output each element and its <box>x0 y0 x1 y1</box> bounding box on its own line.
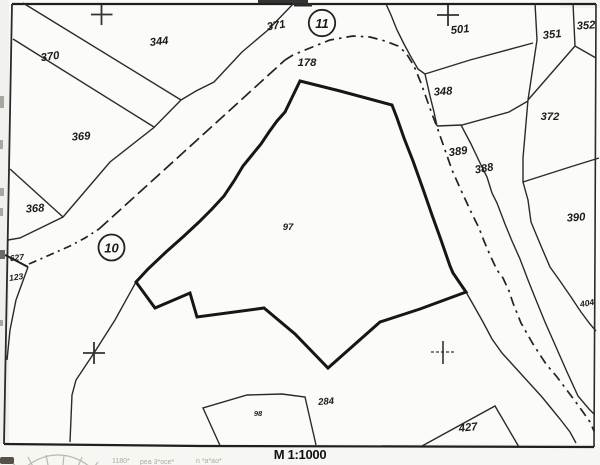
svg-text:98: 98 <box>254 409 263 418</box>
svg-text:pea 3*oce*: pea 3*oce* <box>140 459 175 465</box>
svg-text:390: 390 <box>566 211 586 224</box>
svg-text:627: 627 <box>9 252 25 264</box>
svg-text:284: 284 <box>317 396 335 408</box>
svg-text:348: 348 <box>433 85 453 98</box>
svg-text:123: 123 <box>8 271 24 283</box>
svg-text:372: 372 <box>541 111 560 123</box>
svg-text:10: 10 <box>104 241 119 256</box>
svg-text:369: 369 <box>71 130 91 143</box>
svg-text:351: 351 <box>542 28 562 42</box>
svg-text:178: 178 <box>298 57 317 69</box>
svg-text:n *a*ao*: n *a*ao* <box>196 458 222 465</box>
svg-text:1180*: 1180* <box>112 458 130 465</box>
svg-text:11: 11 <box>315 16 329 31</box>
svg-text:368: 368 <box>25 202 45 215</box>
svg-text:97: 97 <box>283 222 294 233</box>
svg-text:427: 427 <box>457 421 479 435</box>
svg-text:344: 344 <box>149 35 170 49</box>
svg-text:M 1:1000: M 1:1000 <box>274 447 327 462</box>
svg-text:501: 501 <box>450 23 470 37</box>
svg-text:352: 352 <box>576 19 596 32</box>
